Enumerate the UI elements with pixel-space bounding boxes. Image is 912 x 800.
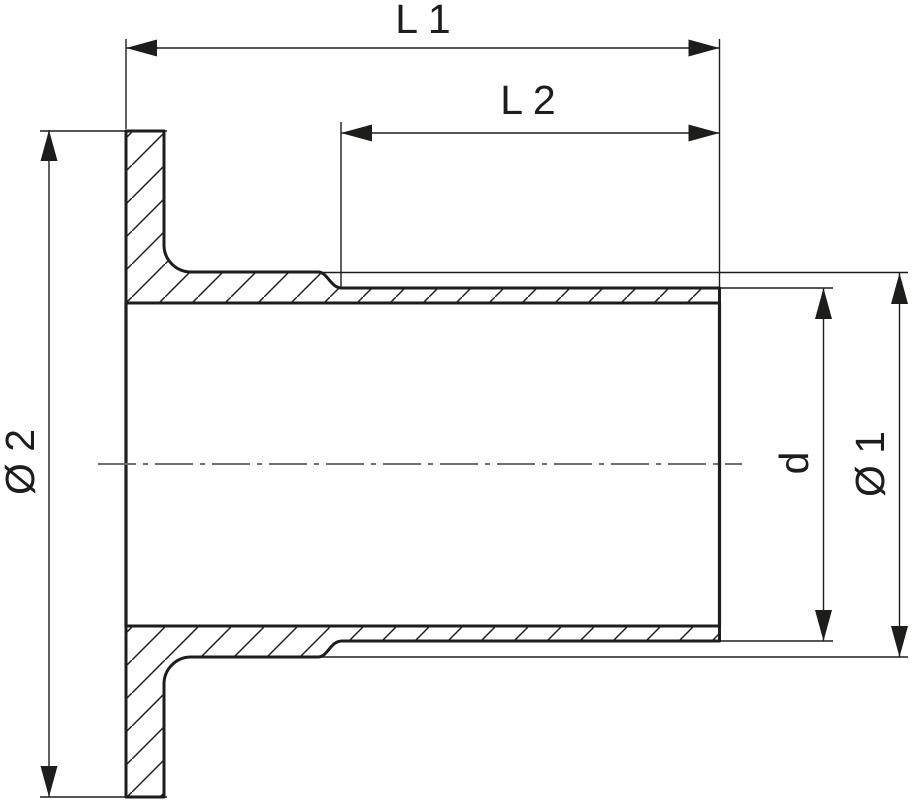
l2-arrowhead-right: [689, 125, 720, 142]
dimension-l1: L 1: [126, 0, 720, 287]
l2-arrowhead-left: [341, 125, 372, 142]
d-label: d: [771, 452, 817, 475]
d2-arrowhead-bottom: [41, 766, 58, 797]
d1-arrowhead-bottom: [891, 626, 908, 657]
part-lower-half: [126, 626, 720, 797]
drawing-canvas: L 1 L 2 Ø 2 d Ø 1: [0, 0, 912, 800]
d1-arrowhead-top: [891, 273, 908, 304]
l1-arrowhead-left: [126, 40, 157, 57]
l1-arrowhead-right: [689, 40, 720, 57]
part-upper-half: [126, 131, 720, 303]
l2-label: L 2: [500, 77, 555, 123]
d2-arrowhead-top: [41, 130, 58, 161]
dimension-l2: L 2: [341, 77, 720, 287]
technical-drawing: L 1 L 2 Ø 2 d Ø 1: [0, 0, 912, 800]
l1-label: L 1: [395, 0, 450, 42]
d-arrowhead-bottom: [815, 610, 832, 641]
d-arrowhead-top: [815, 288, 832, 319]
d1-label: Ø 1: [847, 431, 893, 497]
d2-label: Ø 2: [0, 429, 43, 495]
